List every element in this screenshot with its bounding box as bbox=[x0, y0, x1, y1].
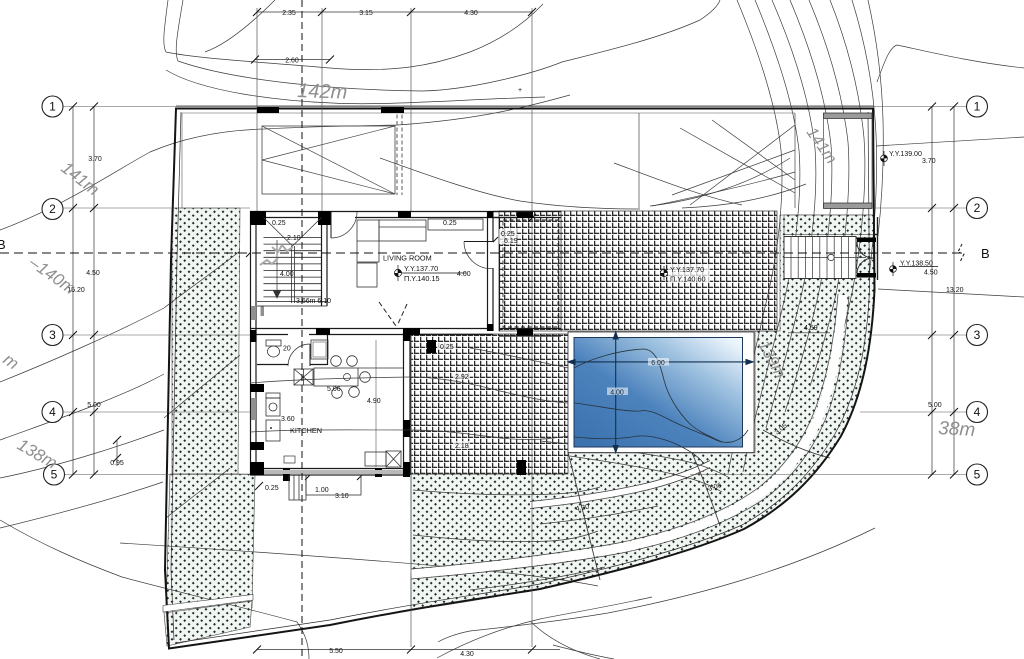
svg-text:2.35: 2.35 bbox=[282, 10, 296, 17]
svg-text:2.92: 2.92 bbox=[455, 374, 469, 381]
svg-text:5.00: 5.00 bbox=[87, 402, 101, 409]
svg-text:142m: 142m bbox=[297, 80, 348, 104]
svg-text:5: 5 bbox=[974, 468, 981, 482]
svg-text:20: 20 bbox=[283, 346, 291, 353]
svg-text:4.90: 4.90 bbox=[367, 398, 381, 405]
svg-text:Π.Y.140.60: Π.Y.140.60 bbox=[670, 275, 706, 284]
svg-text:Y.Y.139.00: Y.Y.139.00 bbox=[889, 151, 922, 158]
svg-text:0.25: 0.25 bbox=[443, 220, 457, 227]
svg-text:2.10: 2.10 bbox=[287, 235, 301, 242]
svg-text:Π.Y.140.15: Π.Y.140.15 bbox=[404, 274, 440, 283]
svg-text:13.20: 13.20 bbox=[946, 287, 964, 294]
svg-text:4.30: 4.30 bbox=[460, 651, 474, 658]
svg-text:LIVING ROOM: LIVING ROOM bbox=[383, 254, 432, 263]
svg-text:4.00: 4.00 bbox=[457, 271, 471, 278]
svg-text:+: + bbox=[518, 87, 522, 94]
svg-text:5.50: 5.50 bbox=[329, 648, 343, 655]
svg-text:KITCHEN: KITCHEN bbox=[290, 426, 322, 435]
svg-text:4.00: 4.00 bbox=[280, 271, 294, 278]
svg-text:0.25: 0.25 bbox=[265, 485, 279, 492]
svg-text:B: B bbox=[981, 246, 990, 261]
svg-text:3.70: 3.70 bbox=[922, 158, 936, 165]
svg-text:3.66m 6.10: 3.66m 6.10 bbox=[296, 298, 331, 305]
svg-text:0.25: 0.25 bbox=[272, 220, 286, 227]
svg-text:4: 4 bbox=[49, 405, 56, 419]
svg-text:3.10: 3.10 bbox=[335, 493, 349, 500]
svg-text:B: B bbox=[0, 237, 6, 252]
svg-text:2: 2 bbox=[974, 201, 981, 215]
svg-text:38m: 38m bbox=[938, 418, 976, 441]
svg-text:Y.Y.137.70: Y.Y.137.70 bbox=[404, 264, 438, 273]
svg-text:5.06: 5.06 bbox=[327, 386, 341, 393]
svg-text:6.19: 6.19 bbox=[504, 238, 518, 245]
svg-text:3.60: 3.60 bbox=[281, 416, 295, 423]
svg-text:Y.Y.137.70: Y.Y.137.70 bbox=[670, 265, 704, 274]
svg-text:3: 3 bbox=[49, 328, 56, 342]
svg-text:0.25: 0.25 bbox=[501, 231, 515, 238]
svg-text:6.00: 6.00 bbox=[651, 360, 665, 367]
svg-text:1: 1 bbox=[49, 100, 56, 114]
svg-text:4.50: 4.50 bbox=[86, 270, 100, 277]
svg-text:4: 4 bbox=[974, 405, 981, 419]
svg-text:2.60: 2.60 bbox=[285, 58, 299, 65]
svg-text:Y.Y.138.50: Y.Y.138.50 bbox=[900, 261, 933, 268]
svg-text:4.50: 4.50 bbox=[924, 270, 938, 277]
svg-text:4.59: 4.59 bbox=[804, 325, 818, 332]
svg-text:3.15: 3.15 bbox=[359, 10, 373, 17]
svg-text:4.30: 4.30 bbox=[464, 10, 478, 17]
svg-text:1.00: 1.00 bbox=[315, 487, 329, 494]
svg-text:1: 1 bbox=[974, 100, 981, 114]
svg-text:3.70: 3.70 bbox=[88, 156, 102, 163]
svg-text:0.25: 0.25 bbox=[440, 344, 454, 351]
svg-text:0.95: 0.95 bbox=[110, 460, 124, 467]
svg-text:5.00: 5.00 bbox=[928, 402, 942, 409]
svg-text:3: 3 bbox=[974, 328, 981, 342]
svg-text:4.00: 4.00 bbox=[610, 390, 624, 397]
svg-text:2: 2 bbox=[49, 202, 56, 216]
svg-text:2.18: 2.18 bbox=[455, 443, 469, 450]
